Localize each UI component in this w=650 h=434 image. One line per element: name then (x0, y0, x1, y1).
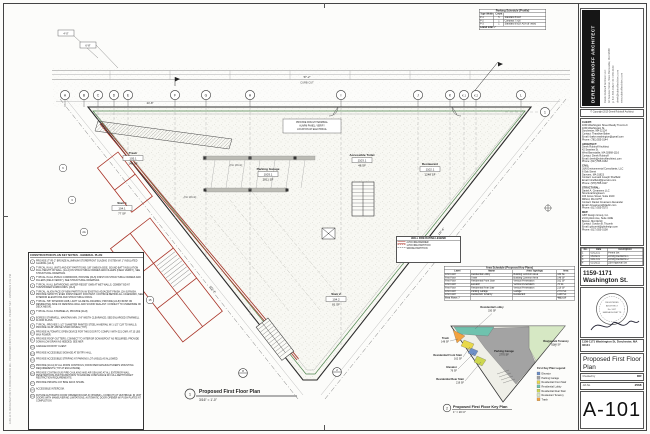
wall-legend-label: SMOKE PARTITION (407, 247, 428, 250)
signature (591, 321, 639, 330)
svg-text:1248 SF: 1248 SF (425, 173, 436, 177)
key-note-item: 14PROVIDE ACCESSIBLE STRIPING AT PARKING… (30, 358, 144, 363)
field-label: Job No. (583, 385, 591, 388)
firm-contact-line: p: 617.555.0162 f: 617.555.0163 (611, 65, 615, 103)
svg-text:Residential Lobby: Residential Lobby (480, 305, 504, 309)
svg-text:Accessible Toilet: Accessible Toilet (349, 153, 374, 157)
svg-text:Residential Front Stair: Residential Front Stair (542, 381, 567, 384)
svg-text:2770 SF: 2770 SF (499, 354, 509, 357)
key-plan-label: Residential Front Stair162 SF (433, 347, 470, 361)
room-tag: Stair 1104.177 SF (112, 201, 132, 216)
stamp-line: ARCHITECT (606, 304, 619, 307)
svg-text:76 SF: 76 SF (450, 370, 457, 373)
firm-name: DEREK RUBINOFF ARCHITECT (591, 25, 596, 103)
svg-text:Restaurant Tenancy: Restaurant Tenancy (543, 339, 569, 343)
svg-text:330 SF: 330 SF (488, 310, 497, 313)
firm-contact-line: Derek Rubinoff Architect LLC (603, 69, 607, 103)
key-note-bubble: 2A (80, 228, 88, 236)
dimension-label: 57'-2" (304, 75, 311, 79)
svg-text:Elevator: Elevator (542, 373, 551, 376)
svg-text:Residential Rear Stair: Residential Rear Stair (542, 390, 566, 393)
key-notes-title: CONSTRUCTION PLAN KEY NOTES - GENERAL PL… (30, 254, 144, 258)
field-value: DR (637, 375, 641, 379)
key-plan-label: Residential Lobby330 SF (475, 305, 504, 329)
svg-text:2A: 2A (82, 230, 85, 234)
stamp-line: REGISTERED (605, 302, 619, 304)
key-note-item: 10PROVIDE AUTOMATIC OPEN DEVICE FOR THIS… (30, 331, 144, 336)
plan-caption: 1Proposed First Floor Plan3/16" = 1'-0" (185, 389, 297, 402)
dash-gray-line-symbol (398, 247, 406, 249)
svg-text:Trash: Trash (129, 151, 137, 155)
key-note-item: 3TYPICAL IN ALL PUBLIC CORRIDORS, PROVID… (30, 276, 144, 281)
alignment-tick (324, 425, 325, 430)
svg-text:Trash: Trash (542, 398, 549, 401)
svg-text:1: 1 (189, 392, 192, 397)
key-note-item: 17PROVIDE PRIVATE 4'x6' BIKE RACK SHAPE. (30, 381, 144, 386)
svg-text:2811 SF: 2811 SF (263, 178, 274, 182)
svg-text:Residential Front Stair: Residential Front Stair (433, 353, 462, 357)
curb-cut-label: CURB CUT (300, 81, 314, 85)
key-note-item: 6TYPICAL: 5/8" INTERIOR GWB, LIGHT GA ME… (30, 300, 144, 308)
project-address-box: 1159-1171 Washington St, Dorchester, MA … (580, 339, 644, 352)
svg-text:PROVIDE ROUGH TERMINAL: PROVIDE ROUGH TERMINAL (296, 121, 328, 124)
key-plan-label: Residential Rear Stair219 SF (436, 362, 481, 385)
svg-text:15: 15 (149, 298, 152, 302)
svg-text:1103.1: 1103.1 (358, 158, 367, 162)
svg-text:F: F (174, 94, 176, 98)
svg-text:219 SF: 219 SF (456, 382, 465, 385)
job-number-row: Job No.2568 (580, 382, 644, 390)
svg-text:Residential Lobby: Residential Lobby (542, 386, 563, 389)
svg-text:Proposed First Floor Key Plan: Proposed First Floor Key Plan (453, 405, 508, 409)
stamp-line: No. 9417 (608, 309, 617, 311)
key-plan: Residential Lobby330 SFTrash148 SFReside… (437, 296, 578, 418)
revision-row: 505/05/23Permit Set (581, 265, 643, 266)
key-note-item: 4TYPICAL IN ALL BATHROOMS: WATER-RESIST … (30, 283, 144, 288)
alignment-tick (3, 216, 8, 217)
checked-by-row: Checked byDR (580, 373, 644, 381)
legend-swatch (537, 372, 540, 375)
consultant-line: Phone: (617) 555-0175 (582, 207, 644, 210)
key-note-item: 2TYPICAL IN ALL UNITS AND EXT PARTITIONS… (30, 266, 144, 274)
survey-marker (544, 204, 552, 212)
firm-contact-line: 42 Seaview Street, West Barnstable, MA 0… (607, 48, 611, 103)
firm-contact-line: derek@rubinoffarchitect.com (615, 70, 619, 103)
svg-text:1" = 20'-0": 1" = 20'-0" (453, 410, 466, 414)
svg-text:I: I (341, 94, 342, 98)
plot-stamp-note: 1159-1171 WASHINGTON ST, DORCHESTER MA -… (9, 274, 12, 424)
svg-text:Elevator: Elevator (446, 365, 457, 369)
svg-text:2: 2 (446, 406, 448, 410)
sheet-number: A-101 (581, 392, 643, 428)
svg-text:K.2: K.2 (474, 94, 478, 98)
key-note-item: 15PROVIDE [10-11] AT ALL ROOM CONTROLS; … (30, 364, 144, 369)
consultant-line: Phone: (617) 555-0162 (582, 161, 644, 164)
legend-swatch (537, 381, 540, 384)
consultant-line: Phone: (978) 555-0117 (582, 182, 644, 185)
street-band (52, 68, 570, 107)
key-note-item: 18ACCESSIBLE INTERCOM. (30, 388, 144, 393)
key-note-item: 19FUTURE AUTOMATIC DOOR OPENER ROUGH-IN … (30, 394, 144, 402)
legend-swatch (537, 398, 540, 401)
dimension-label: 137'-6" (437, 227, 446, 236)
legend-swatch (537, 394, 540, 397)
key-note-item: 13PROVIDE ACCESSIBLE SIGNAGE AT ENTRY HA… (30, 351, 144, 356)
footer-row: Grand total: 7 (479, 26, 546, 29)
key-plan-caption: 2Proposed First Floor Key Plan1" = 20'-0… (443, 404, 512, 414)
svg-text:6'-8": 6'-8" (85, 43, 90, 47)
parking-schedule-table: Parking Schedule (Profile)Type WidthCoun… (479, 9, 546, 51)
svg-text:162 SF: 162 SF (454, 358, 463, 361)
project-name: 1159-1171 Washington St. (581, 268, 643, 286)
key-note-bubble: 15 (146, 296, 154, 304)
svg-text:Restaurant Tenancy: Restaurant Tenancy (542, 394, 565, 397)
svg-text:G: G (205, 94, 208, 98)
firm-contact-line: www.rubinoffarchitect.com (619, 73, 623, 103)
project-address: 1159-1171 Washington St, Dorchester, MA … (581, 340, 644, 348)
wall-legend-row: SMOKE PARTITION (397, 247, 460, 250)
sheet-title: Proposed First Floor Plan (581, 354, 643, 372)
legend-swatch (537, 389, 540, 392)
field-value: 2568 (635, 384, 642, 388)
svg-text:3/16" = 1'-0": 3/16" = 1'-0" (199, 398, 218, 402)
sheet-number-box: A-101 (580, 391, 644, 429)
svg-text:ALARM PANEL; VERIFY: ALARM PANEL; VERIFY (299, 125, 325, 128)
svg-text:4'-0": 4'-0" (63, 31, 68, 35)
key-note-item: 8EGRESS STAIRWELL, MAINTAIN MIN. 3'-8" W… (30, 316, 144, 321)
svg-text:1102.1: 1102.1 (426, 167, 435, 171)
stair-right (352, 182, 374, 216)
legend-swatch (537, 376, 540, 379)
detail-marker: 8 (239, 369, 248, 378)
field-label: Checked by (583, 376, 596, 379)
svg-text:First Key Plan Legend: First Key Plan Legend (537, 366, 566, 370)
svg-text:Parking Garage: Parking Garage (542, 377, 560, 380)
dimension-flag: 6'-8" (80, 42, 118, 68)
svg-text:1248 SF: 1248 SF (551, 344, 561, 347)
svg-text:Residential Rear Stair: Residential Rear Stair (436, 377, 464, 381)
svg-text:148 SF: 148 SF (128, 162, 138, 166)
key-note-bubble: 6 (59, 164, 67, 172)
key-note-bubble: 3 (68, 196, 76, 204)
svg-text:K.1: K.1 (462, 94, 466, 98)
copyright-row: © Copyright 2019 Derek Rubinoff Architec… (580, 109, 644, 117)
key-note-item: 12GARAGE DOOR BY CLIENT. (30, 345, 144, 350)
dash-red-line-symbol (398, 244, 406, 246)
key-plan-legend: First Key Plan LegendElevatorParking Gar… (537, 366, 566, 401)
svg-text:77 SF: 77 SF (118, 212, 126, 216)
revision-table: No.DateDescription103/12/21Permit Set206… (580, 247, 644, 266)
title-block-firm: DEREK RUBINOFF ARCHITECTDerek Rubinoff A… (580, 8, 644, 108)
svg-text:LOCATION W/ ELECTRICAL: LOCATION W/ ELECTRICAL (297, 128, 328, 131)
no-work-label: (No Work) (230, 163, 243, 167)
svg-text:Proposed First Floor Plan: Proposed First Floor Plan (199, 389, 260, 395)
elevator-shaft (322, 228, 335, 239)
detail-marker: 2 (333, 368, 342, 377)
svg-text:81 SF: 81 SF (332, 303, 340, 307)
legend-swatch (537, 385, 540, 388)
consultant-line: Phone: (781) 555-0144 (582, 139, 644, 142)
plan-note-box: PROVIDE ROUGH TERMINALALARM PANEL; VERIF… (283, 119, 341, 133)
key-note-item: 16PROVIDE CONTINUOUS FIRE CAULKING AND A… (30, 371, 144, 379)
svg-text:104.1: 104.1 (118, 206, 126, 210)
svg-text:1: 1 (544, 111, 546, 115)
svg-text:1003.1: 1003.1 (264, 172, 273, 176)
dimension-label: 24'-8" (147, 101, 154, 105)
svg-text:L: L (520, 94, 522, 98)
title-block-divider (578, 3, 579, 430)
sheet-title-box: Proposed First Floor Plan (580, 353, 644, 372)
wall-fire-rating-legend: WALL FIRE RATING LEGEND 2-HR FIRE BARRIE… (396, 236, 461, 263)
key-note-item: 11PROVIDE ROOF GUTTERS; CONNECT TO INTER… (30, 338, 144, 343)
svg-text:48 SF: 48 SF (358, 164, 366, 168)
key-note-item: 5TYPICAL: ALIGN FACE OF NEW PARTITION W/… (30, 290, 144, 298)
drawing-sheet: ABCDEFGHIJKK.1K.2L1Parking Garage1003.12… (0, 0, 650, 434)
key-note-item: 1PROVIDE (TYP) 2" BRONZE ALUMINUM STOREF… (30, 259, 144, 264)
double-red-line-symbol (398, 241, 406, 244)
no-work-label: (No Work) (184, 195, 197, 199)
svg-text:Parking Garage: Parking Garage (494, 349, 514, 353)
copyright: © Copyright 2019 Derek Rubinoff Architec… (581, 110, 643, 113)
svg-text:Stair 2: Stair 2 (331, 292, 341, 296)
consultants-block: CLIENT:1159 Washington Street Realty Tru… (580, 118, 644, 246)
key-note-item: 9TYPICAL: PROVIDE 1-1/2" DIAMETER PAINTE… (30, 324, 144, 329)
svg-text:Parking Garage: Parking Garage (257, 167, 280, 171)
key-note-item: 7TYPICAL IN ALL STAIRWELLS, PROVIDE [2A-… (30, 310, 144, 315)
svg-text:148 SF: 148 SF (441, 341, 450, 344)
svg-text:Stair 1: Stair 1 (117, 201, 127, 205)
key-notes-panel: CONSTRUCTION PLAN KEY NOTES - GENERAL PL… (28, 252, 144, 430)
stamp-line: MASSACHUSETTS (603, 311, 622, 314)
architect-stamp: REGISTEREDARCHITECTNo. 9417MASSACHUSETTS (580, 287, 644, 338)
consultant-line: Phone: (617) 555-0108 (582, 229, 644, 232)
svg-text:J: J (417, 94, 419, 98)
svg-text:Restaurant: Restaurant (422, 162, 438, 166)
alignment-tick (324, 3, 325, 8)
svg-text:104.2: 104.2 (332, 297, 340, 301)
svg-text:105.1: 105.1 (129, 156, 137, 160)
svg-text:Trash: Trash (442, 336, 450, 340)
project-name-box: 1159-1171 Washington St. (580, 267, 644, 286)
